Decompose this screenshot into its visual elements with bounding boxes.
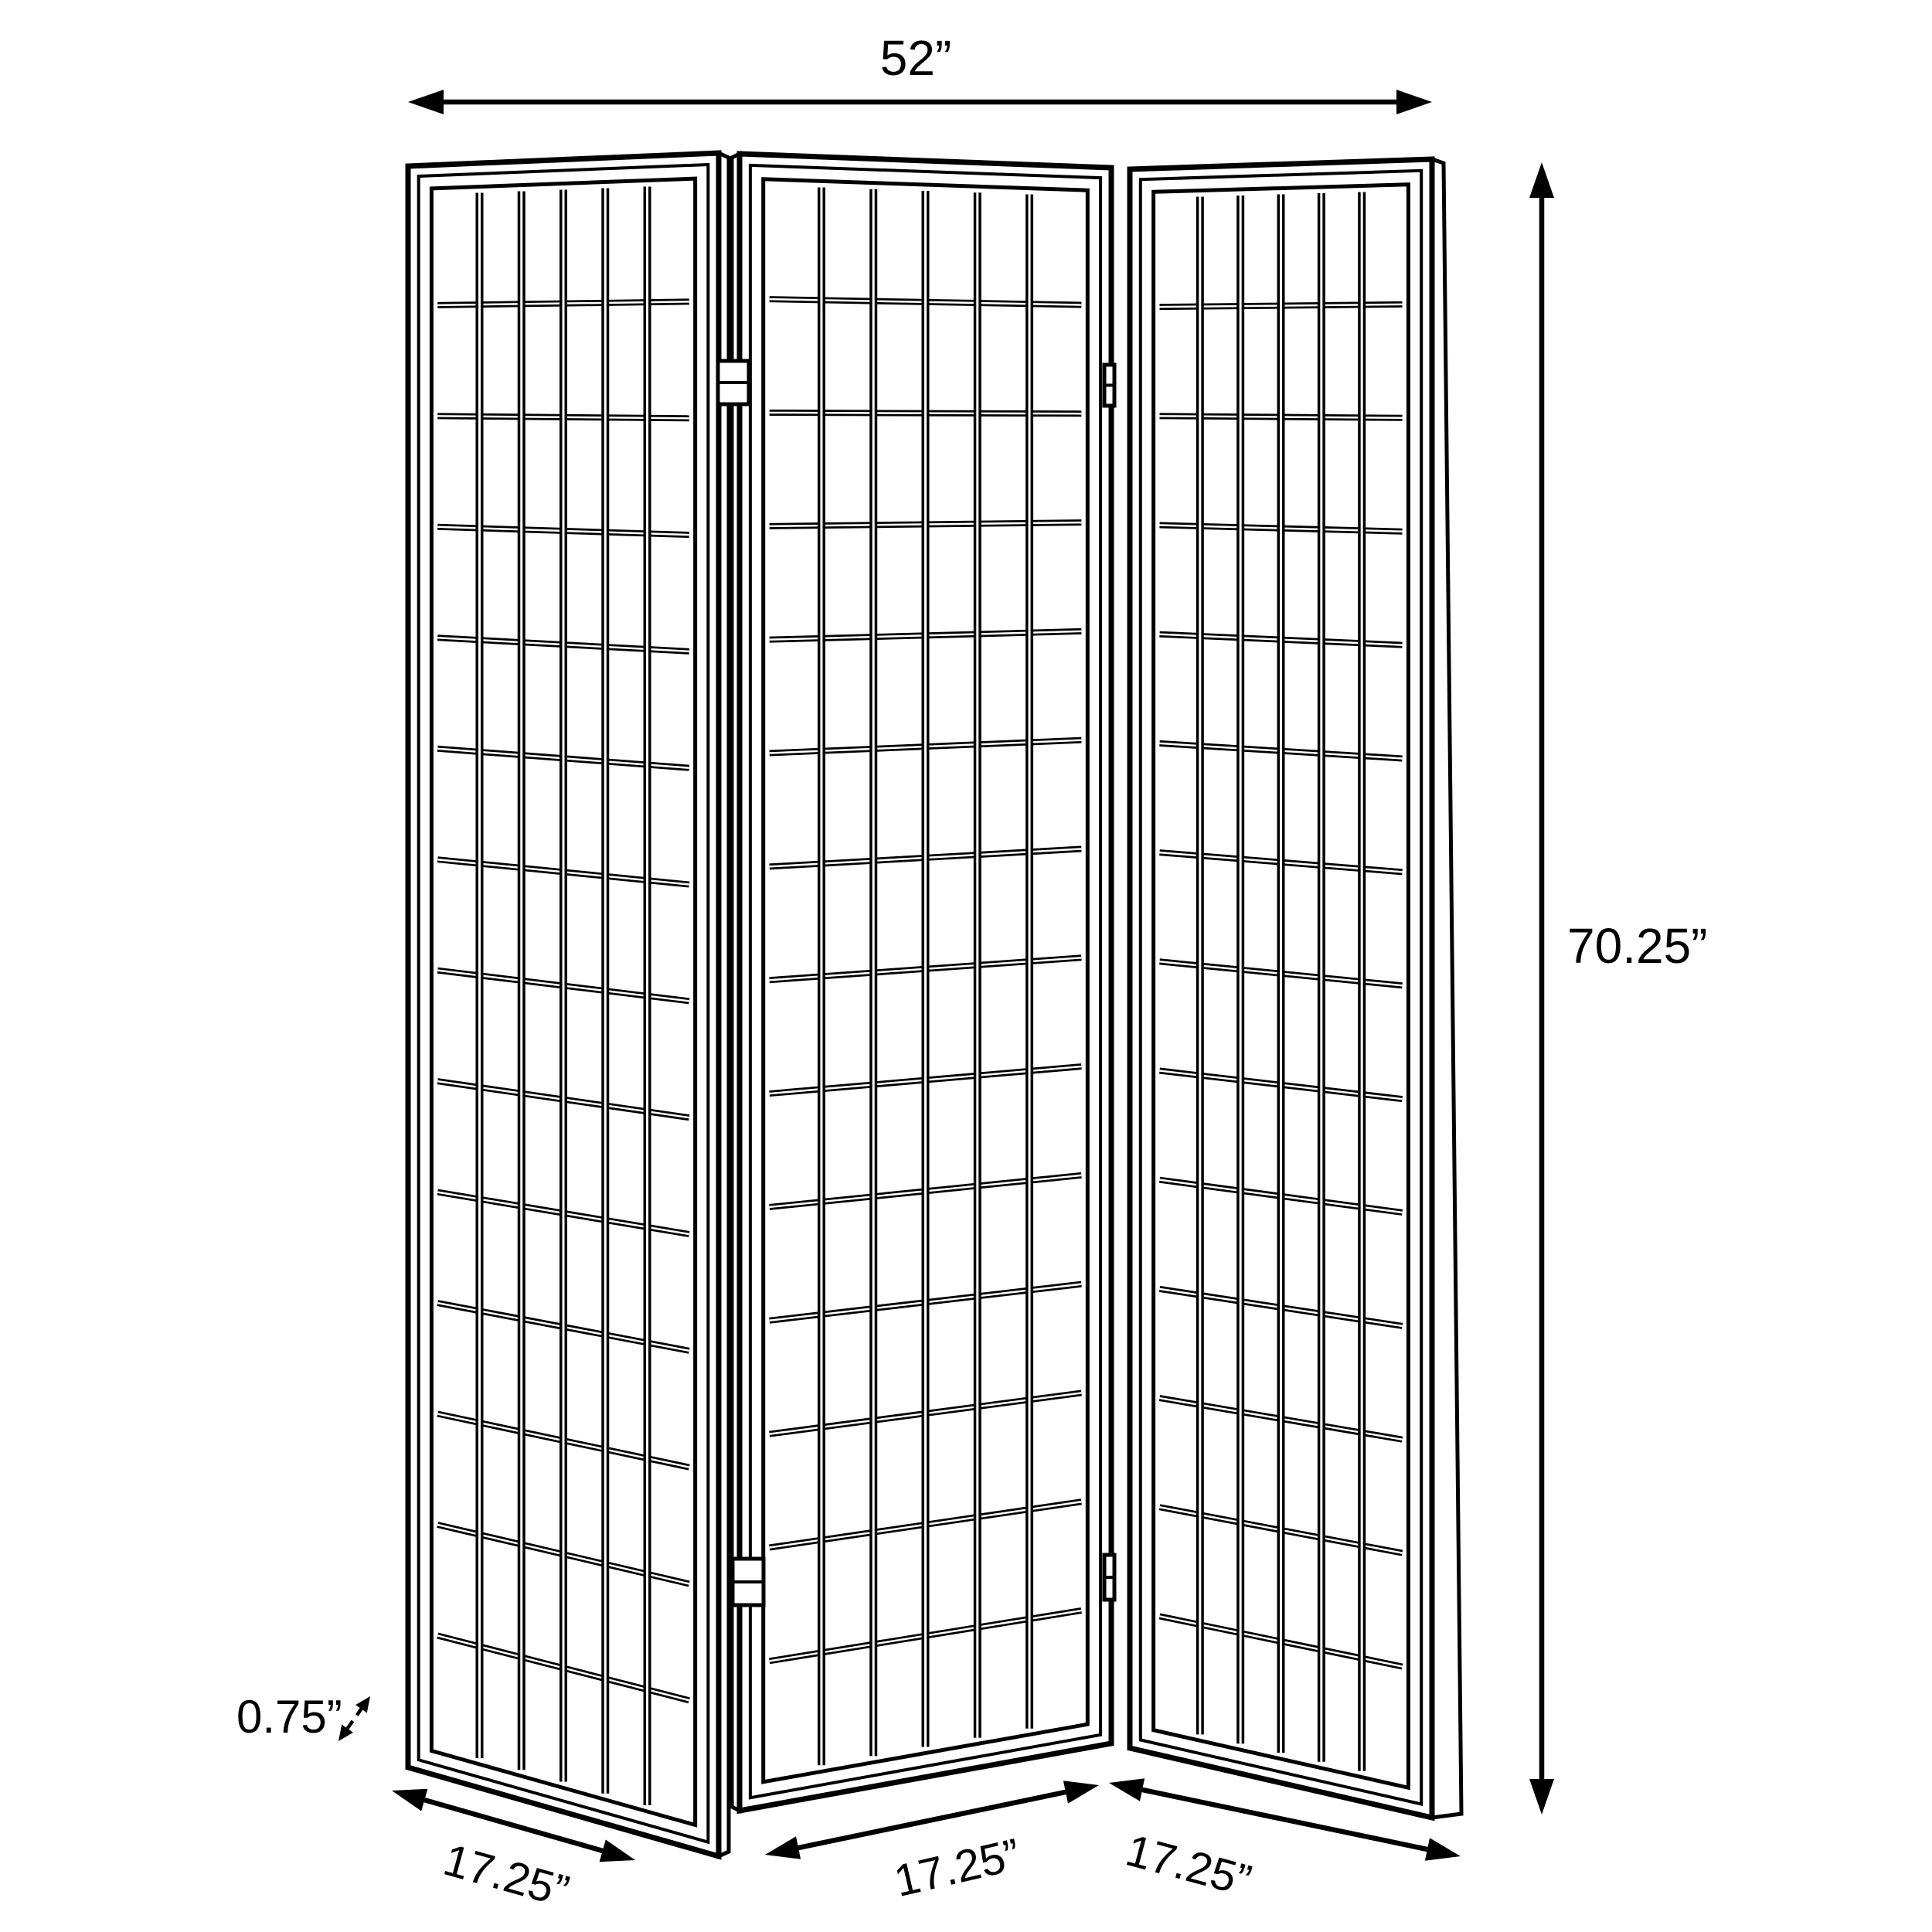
panel-middle (732, 154, 1111, 1811)
dimension-arrowhead (1396, 90, 1432, 114)
dimension-arrowhead (1109, 1778, 1145, 1801)
dimension-arrowhead (1063, 1781, 1099, 1803)
panel3-width-label: 17.25” (1121, 1825, 1257, 1906)
dimension-arrowhead (392, 1789, 427, 1811)
dimension-line (348, 1709, 362, 1728)
dimension-arrowhead (1529, 1779, 1554, 1815)
dimension-arrowhead (355, 1696, 370, 1713)
panel-side-face (1432, 159, 1461, 1818)
overall-height-label: 70.25” (1567, 918, 1707, 974)
overall-width-label: 52” (880, 30, 952, 86)
height-dimension-arrow (1529, 162, 1554, 1815)
room-divider-diagram: 52” 70.25” 17.25” 17.25” 17.25” 0.75” (0, 0, 1932, 1932)
panel1-width-label: 17.25” (438, 1835, 574, 1917)
dimension-arrowhead (1425, 1838, 1461, 1860)
dimension-arrowhead (1529, 162, 1554, 198)
dimension-arrowhead (765, 1836, 801, 1859)
dimension-line (798, 1792, 1066, 1848)
frame-thickness-arrow (338, 1696, 370, 1741)
diagram-canvas: 52” 70.25” 17.25” 17.25” 17.25” 0.75” (0, 0, 1932, 1932)
width-dimension-arrow (408, 90, 1432, 114)
dimension-arrowhead (408, 90, 444, 114)
dimension-arrowhead (600, 1840, 635, 1862)
panel-right (1130, 159, 1461, 1818)
frame-thickness-label: 0.75” (236, 1691, 342, 1743)
panel2-width-label: 17.25” (889, 1829, 1025, 1906)
panel-left (408, 153, 729, 1856)
